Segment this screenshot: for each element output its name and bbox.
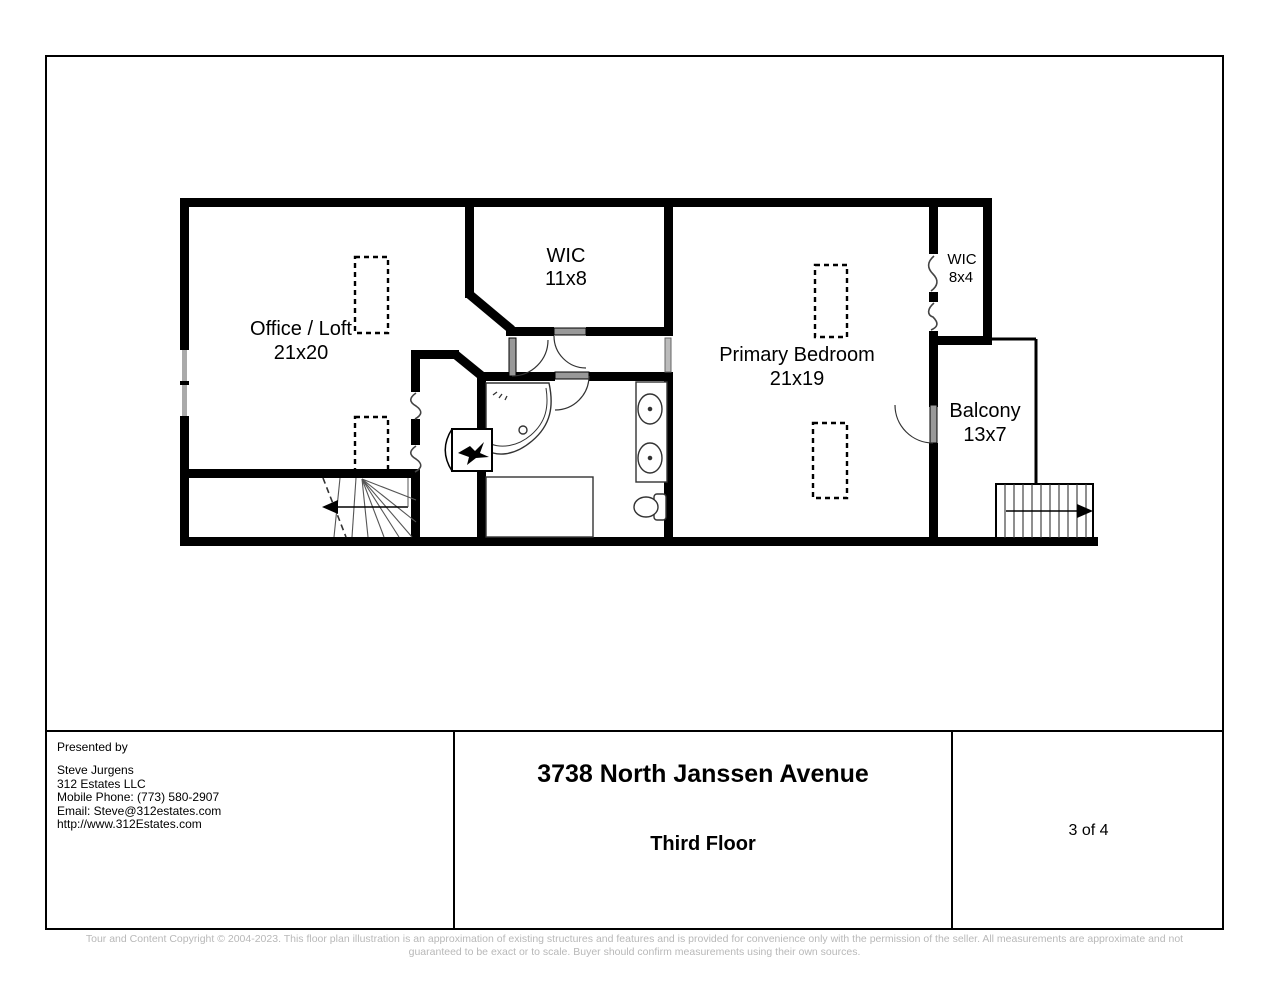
- wic-8x4-label: WIC: [947, 251, 976, 268]
- office-loft-label: Office / Loft: [250, 318, 352, 340]
- primary-bedroom-label: Primary Bedroom: [719, 344, 875, 366]
- wic-8x4-dimensions: 8x4: [949, 269, 973, 286]
- double-sink-vanity: [636, 382, 667, 482]
- balcony-label: Balcony: [949, 400, 1020, 422]
- disclaimer-line-2: guaranteed to be exact or to scale. Buye…: [0, 946, 1269, 959]
- shower: [486, 477, 593, 537]
- bathroom-door: [555, 372, 589, 410]
- window: [180, 345, 189, 421]
- straight-stairs-down: [996, 484, 1093, 538]
- agent-name: Steve Jurgens: [57, 764, 443, 778]
- hall-door: [509, 338, 548, 376]
- page-number: 3 of 4: [1068, 822, 1108, 840]
- agent-phone: Mobile Phone: (773) 580-2907: [57, 791, 443, 805]
- cased-opening: [665, 338, 671, 372]
- wic-11x8-door: [554, 328, 586, 368]
- mechanical-unit: [445, 429, 492, 471]
- stairs-down-arrow-left: [322, 500, 338, 514]
- disclaimer-line-1: Tour and Content Copyright © 2004-2023. …: [0, 933, 1269, 946]
- page-number-cell: 3 of 4: [953, 732, 1224, 930]
- balcony-dimensions: 13x7: [963, 424, 1006, 446]
- toilet: [634, 494, 666, 520]
- title-cell: 3738 North Janssen Avenue Third Floor: [453, 732, 953, 930]
- agent-company: 312 Estates LLC: [57, 778, 443, 792]
- property-address-title: 3738 North Janssen Avenue: [455, 760, 951, 789]
- agent-info-cell: Presented by Steve Jurgens 312 Estates L…: [45, 732, 453, 930]
- corner-tub: [486, 383, 551, 454]
- balcony-door: [895, 405, 937, 443]
- interior-walls: [180, 198, 673, 546]
- office-loft-dimensions: 21x20: [274, 342, 329, 364]
- wic-11x8-dimensions: 11x8: [545, 268, 587, 290]
- copyright-disclaimer: Tour and Content Copyright © 2004-2023. …: [0, 933, 1269, 959]
- presented-by-label: Presented by: [57, 740, 443, 754]
- winder-stairs-down: [322, 478, 416, 537]
- agent-website: http://www.312Estates.com: [57, 818, 443, 832]
- agent-email: Email: Steve@312estates.com: [57, 805, 443, 819]
- floor-subtitle: Third Floor: [455, 833, 951, 856]
- footer-band: Presented by Steve Jurgens 312 Estates L…: [45, 730, 1224, 930]
- primary-bedroom-dimensions: 21x19: [770, 368, 825, 390]
- wic-11x8-label: WIC: [547, 245, 586, 267]
